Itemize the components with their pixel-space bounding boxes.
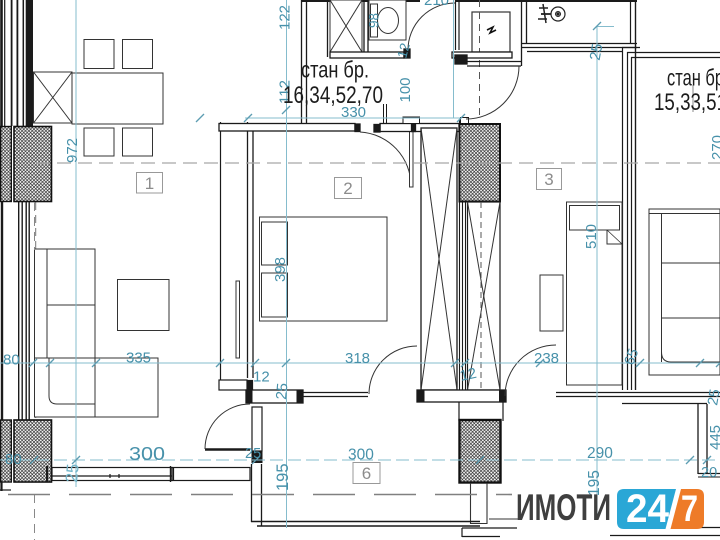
svg-text:24: 24 <box>626 487 670 531</box>
svg-text:25: 25 <box>62 463 83 484</box>
svg-text:12: 12 <box>458 365 478 385</box>
svg-text:318: 318 <box>345 350 370 367</box>
svg-text:80: 80 <box>3 352 20 369</box>
svg-text:25: 25 <box>587 42 607 61</box>
svg-text:стан бр.: стан бр. <box>301 57 369 83</box>
svg-text:300: 300 <box>129 444 165 464</box>
svg-text:972: 972 <box>64 138 81 163</box>
svg-text:210: 210 <box>424 0 449 9</box>
svg-text:100: 100 <box>397 77 414 102</box>
svg-text:16,34,52,70: 16,34,52,70 <box>283 82 383 109</box>
svg-text:80: 80 <box>5 451 22 468</box>
svg-text:270: 270 <box>709 135 720 160</box>
svg-text:25: 25 <box>245 446 261 462</box>
svg-text:7: 7 <box>681 488 698 529</box>
svg-text:25: 25 <box>273 382 291 400</box>
svg-text:1: 1 <box>145 174 154 193</box>
svg-text:98: 98 <box>367 13 382 28</box>
svg-text:510: 510 <box>583 224 600 249</box>
svg-text:300: 300 <box>348 447 374 464</box>
svg-text:6: 6 <box>362 464 371 483</box>
svg-text:445: 445 <box>707 425 720 450</box>
svg-text:2: 2 <box>343 179 352 198</box>
svg-text:12: 12 <box>253 369 270 386</box>
svg-text:335: 335 <box>126 350 151 367</box>
svg-text:122: 122 <box>277 5 294 30</box>
svg-text:290: 290 <box>587 445 613 462</box>
svg-text:238: 238 <box>534 350 559 367</box>
svg-text:ИМОТИ: ИМОТИ <box>516 487 611 528</box>
svg-text:398: 398 <box>272 257 289 282</box>
svg-text:20: 20 <box>701 465 717 481</box>
svg-text:25: 25 <box>705 388 720 407</box>
svg-text:3: 3 <box>544 170 553 189</box>
svg-text:15,33,51: 15,33,51 <box>654 89 720 116</box>
svg-text:стан бр: стан бр <box>667 65 720 91</box>
svg-text:195: 195 <box>274 463 292 491</box>
